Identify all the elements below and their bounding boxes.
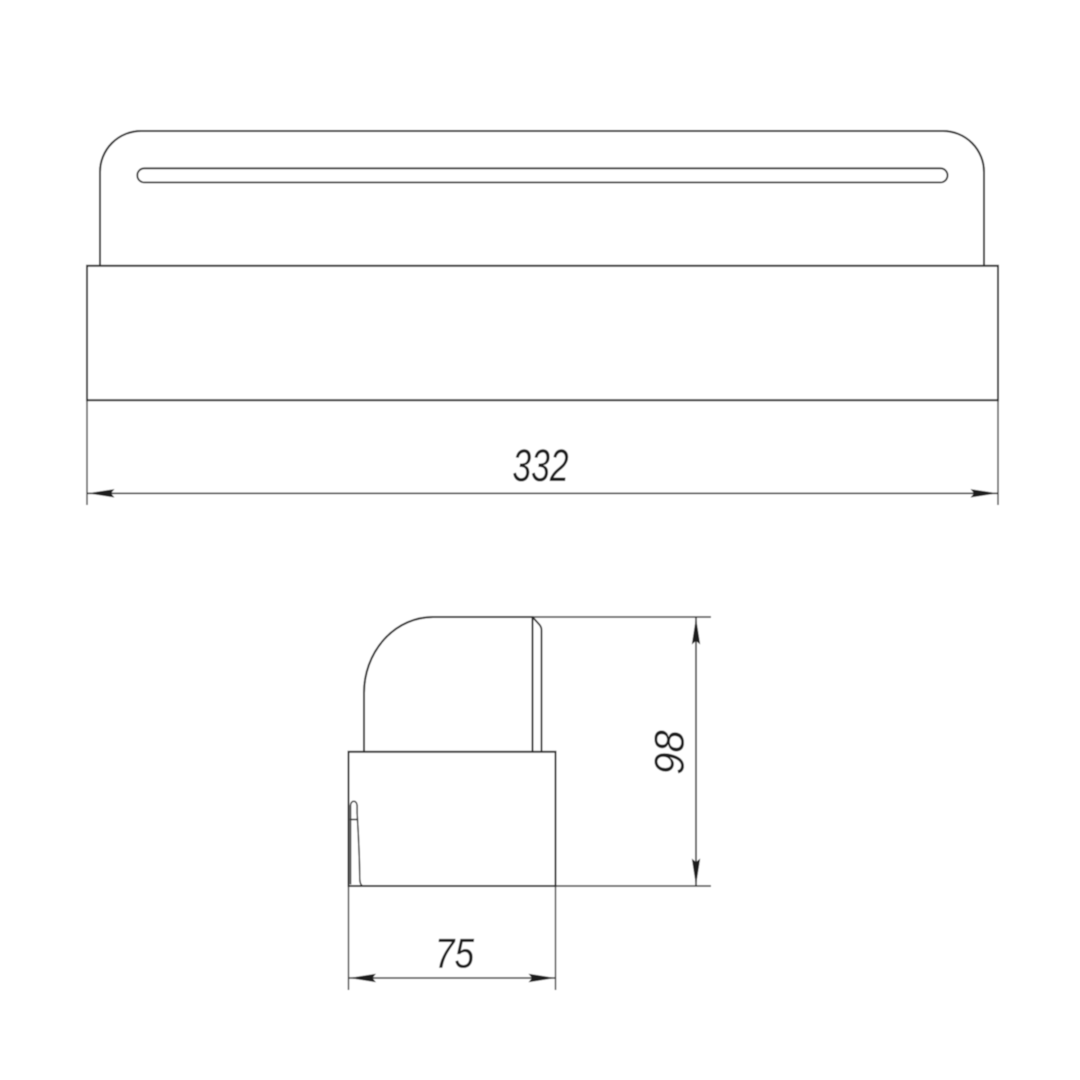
- svg-text:98: 98: [646, 730, 693, 775]
- svg-text:332: 332: [512, 441, 568, 491]
- svg-text:75: 75: [435, 931, 475, 978]
